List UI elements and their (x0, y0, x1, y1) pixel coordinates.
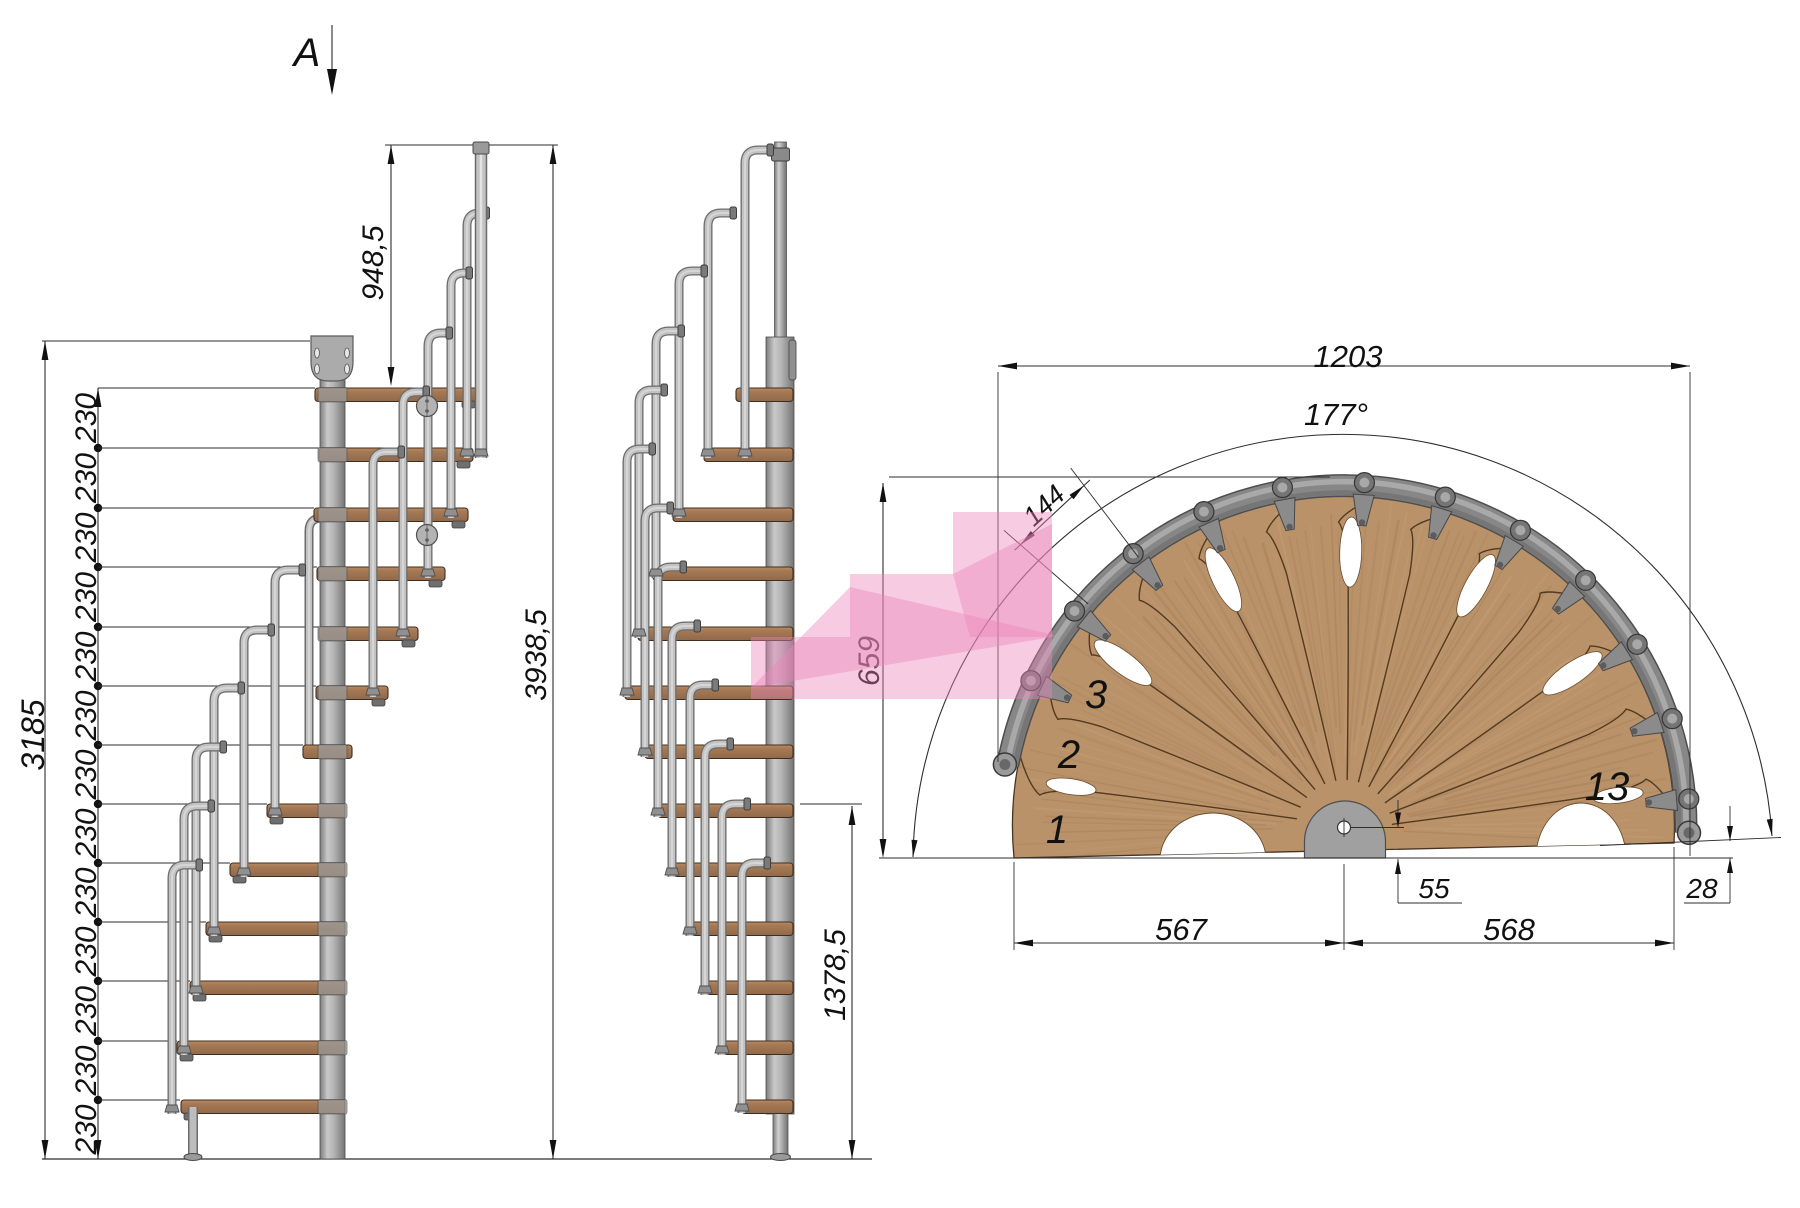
svg-text:230: 230 (70, 986, 103, 1037)
svg-text:230: 230 (70, 453, 103, 504)
svg-text:230: 230 (70, 512, 103, 563)
svg-text:3938,5: 3938,5 (520, 609, 553, 701)
svg-text:177°: 177° (1304, 397, 1368, 432)
svg-text:230: 230 (70, 867, 103, 918)
svg-text:948,5: 948,5 (357, 225, 390, 300)
svg-text:230: 230 (70, 1045, 103, 1096)
svg-text:28: 28 (1685, 873, 1718, 904)
svg-text:13: 13 (1585, 765, 1630, 809)
svg-text:1: 1 (1046, 808, 1068, 852)
svg-text:230: 230 (70, 690, 103, 741)
svg-text:3185: 3185 (15, 699, 51, 770)
svg-text:230: 230 (70, 926, 103, 977)
svg-text:230: 230 (70, 749, 103, 800)
svg-text:A: A (292, 31, 321, 75)
svg-text:1203: 1203 (1314, 339, 1383, 374)
svg-text:230: 230 (70, 572, 103, 623)
svg-text:55: 55 (1418, 873, 1450, 904)
svg-text:567: 567 (1155, 912, 1208, 947)
svg-text:230: 230 (70, 631, 103, 682)
svg-text:230: 230 (70, 1104, 103, 1155)
svg-text:2: 2 (1057, 733, 1080, 777)
svg-text:3: 3 (1085, 673, 1107, 717)
svg-text:1378,5: 1378,5 (819, 929, 852, 1021)
svg-text:230: 230 (70, 808, 103, 859)
svg-text:568: 568 (1483, 912, 1535, 947)
svg-text:230: 230 (70, 393, 103, 444)
